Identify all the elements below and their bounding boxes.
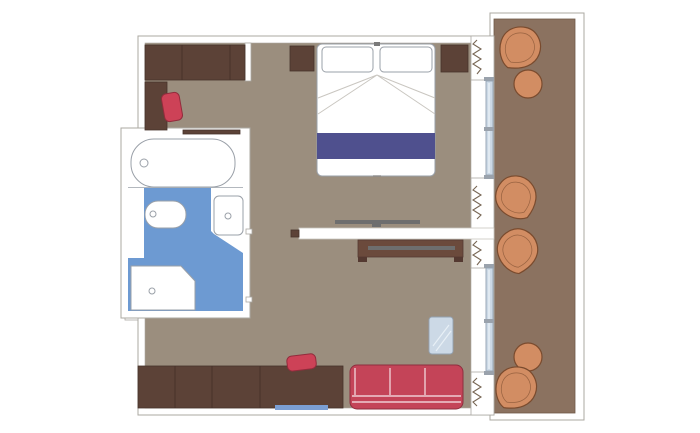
bed-head-mark bbox=[374, 42, 380, 46]
shower-drain bbox=[149, 288, 155, 294]
wall-segment bbox=[471, 238, 494, 268]
floor-mat-icon bbox=[275, 405, 328, 410]
bathroom bbox=[121, 128, 252, 318]
door-frame-cap bbox=[484, 127, 494, 131]
nightstand-icon bbox=[441, 45, 468, 72]
door-frame-cap bbox=[484, 77, 494, 81]
sofa-icon bbox=[350, 365, 463, 409]
shower-tray-icon bbox=[131, 266, 195, 310]
tv-icon bbox=[335, 220, 420, 224]
tv-mount bbox=[372, 224, 381, 227]
door-frame-cap bbox=[484, 371, 494, 375]
wall-stub bbox=[245, 43, 251, 81]
shelf-icon bbox=[183, 130, 240, 134]
double-bed-icon bbox=[317, 42, 435, 176]
tv-icon bbox=[368, 246, 455, 250]
door-jamb bbox=[246, 229, 252, 234]
door-jamb bbox=[246, 297, 252, 302]
floor-plan-canvas bbox=[0, 0, 700, 433]
bed-runner-icon bbox=[317, 133, 435, 159]
pillow-icon bbox=[380, 47, 432, 72]
bath-wall-return bbox=[128, 188, 144, 258]
partition-end-post bbox=[291, 230, 299, 237]
door-frame-cap bbox=[484, 264, 494, 268]
balcony-table-icon bbox=[514, 70, 542, 98]
stool-icon bbox=[286, 353, 317, 371]
toilet-flush bbox=[150, 211, 156, 217]
washbasin-drain bbox=[225, 213, 231, 219]
nightstand-icon bbox=[290, 46, 314, 71]
pillow-icon bbox=[322, 47, 373, 72]
wall-segment bbox=[471, 178, 494, 229]
bathtub-drain bbox=[140, 159, 148, 167]
sideboard-icon bbox=[138, 366, 343, 408]
partition-wall-icon bbox=[299, 228, 494, 239]
floor-plan bbox=[0, 0, 700, 433]
glass-table-icon bbox=[429, 317, 453, 354]
door-frame-cap bbox=[484, 319, 494, 323]
door-frame-cap bbox=[484, 175, 494, 179]
